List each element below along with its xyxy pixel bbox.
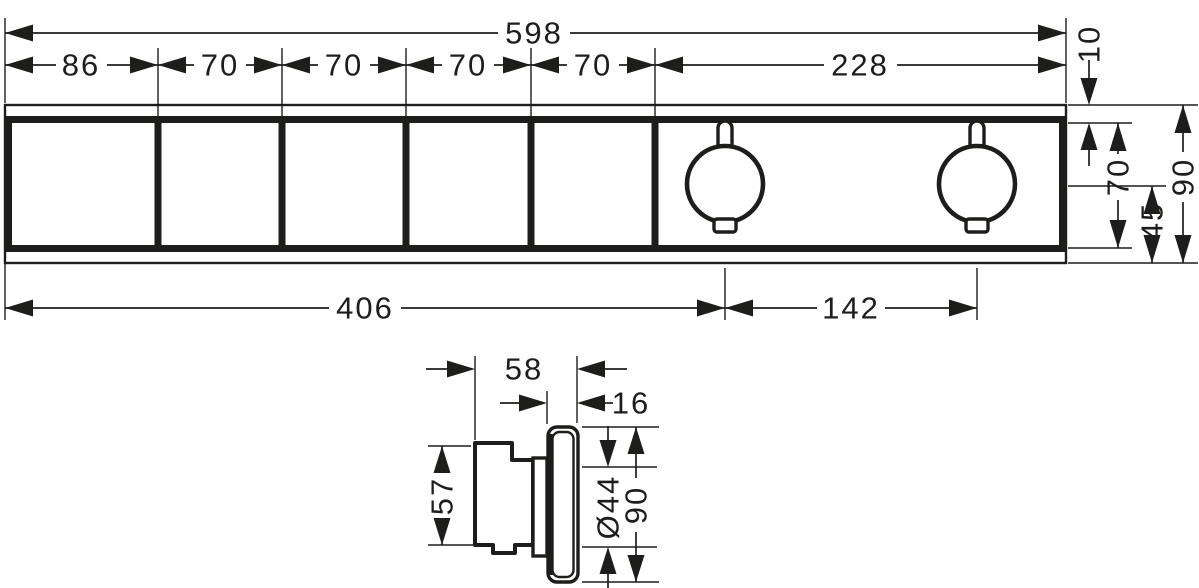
dim-label-segment-6: 228: [831, 48, 889, 83]
dim-label-plate-depth: 16: [612, 386, 650, 421]
dim-label-opening-height: 70: [1101, 158, 1136, 196]
dim-label-body-height: 57: [425, 477, 460, 515]
dim-total-width: 598: [5, 16, 1066, 104]
dim-label-plate-height: 90: [619, 486, 654, 524]
dim-label-segment-2: 70: [201, 48, 239, 83]
technical-drawing-page: 598 86 70 70: [0, 0, 1199, 588]
dim-right-side: 10 70 45 90: [1068, 25, 1199, 263]
sleeve: [533, 458, 547, 556]
dim-label-segment-1: 86: [62, 48, 100, 83]
front-view-panel: [5, 105, 1066, 263]
side-view: [475, 427, 578, 582]
dim-label-total-width: 598: [505, 16, 563, 51]
handle-left: [687, 121, 763, 232]
handle-circle: [687, 146, 763, 222]
dim-label-total-height: 90: [1166, 158, 1199, 196]
dim-label-handle-spacing: 142: [822, 291, 880, 326]
dim-label-edge-offset: 10: [1072, 25, 1107, 63]
dim-label-segment-5: 70: [574, 48, 612, 83]
panel-outline: [5, 105, 1066, 263]
dim-label-center-to-bottom: 45: [1135, 202, 1170, 240]
dim-label-segment-3: 70: [325, 48, 363, 83]
dim-label-segment-4: 70: [449, 48, 487, 83]
handle-bottom-tab: [966, 219, 988, 232]
handle-circle: [939, 146, 1015, 222]
dim-label-left-to-handle: 406: [336, 291, 394, 326]
dim-segments: 86 70 70 70 70 228: [5, 48, 1066, 119]
valve-body: [475, 443, 533, 553]
dimension-drawing: 598 86 70 70: [0, 0, 1199, 588]
dim-plate-depth: 16: [500, 386, 650, 425]
dim-label-side-depth: 58: [505, 352, 543, 387]
handle-bottom-tab: [714, 219, 736, 232]
handle-right: [939, 121, 1015, 232]
